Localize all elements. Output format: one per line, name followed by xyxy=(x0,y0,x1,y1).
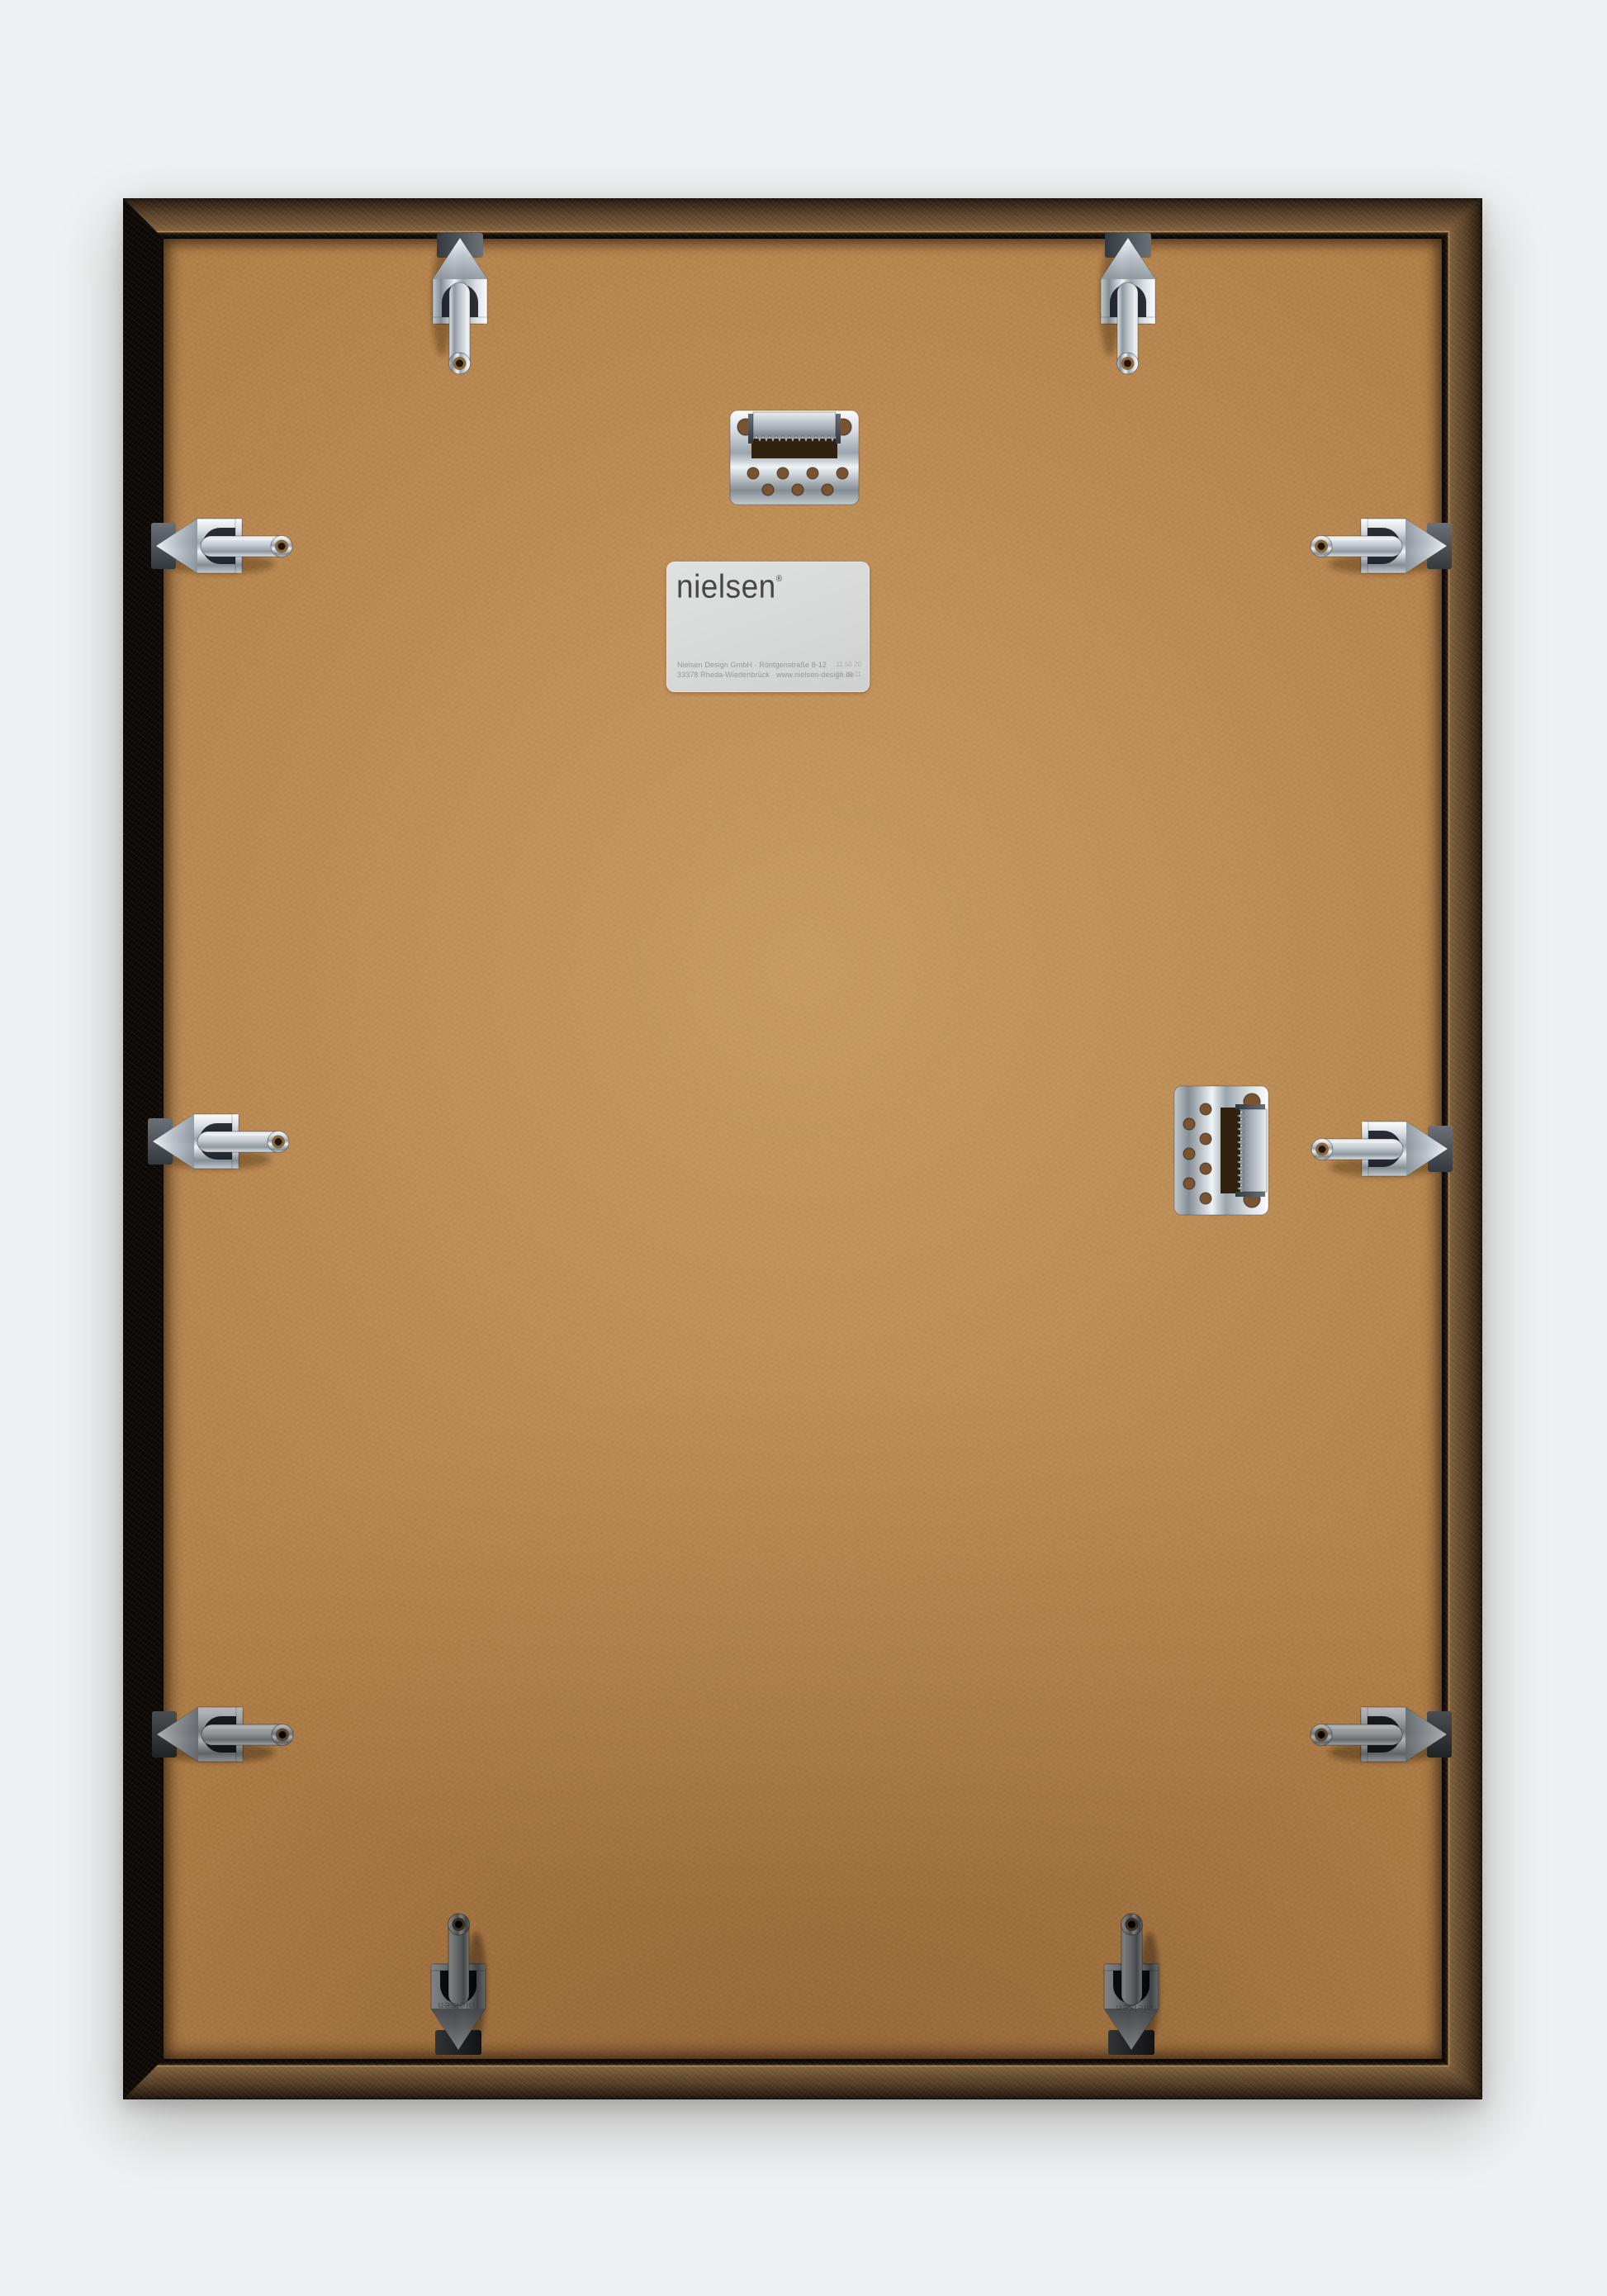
brand-logo: nielsen® xyxy=(676,568,782,605)
address-line-1: Nielsen Design GmbH · Röntgenstraße 8-12 xyxy=(677,660,854,670)
code-line-1: 11 50 20 xyxy=(836,660,861,670)
label-address: Nielsen Design GmbH · Röntgenstraße 8-12… xyxy=(677,660,854,680)
moulding-bottom xyxy=(123,2059,1482,2099)
moulding-top xyxy=(123,198,1482,239)
clip-embossing: nielsen xyxy=(427,2000,485,2012)
moulding-left xyxy=(123,198,164,2099)
address-line-2: 33378 Rheda-Wiedenbrück · www.nielsen-de… xyxy=(677,670,854,680)
photo-canvas: { "scene": { "description": "Back view o… xyxy=(0,0,1607,2296)
backing-board xyxy=(164,239,1442,2059)
frame-back: nielsen nielsen nielsen® Nielsen Design … xyxy=(123,198,1482,2099)
clip-embossing: nielsen xyxy=(1105,2003,1163,2014)
registered-mark: ® xyxy=(776,575,782,585)
moulding-right xyxy=(1442,198,1482,2099)
code-line-2: 21 10 11 xyxy=(836,670,861,680)
product-label: nielsen® Nielsen Design GmbH · Röntgenst… xyxy=(666,562,870,692)
label-codes: 11 50 20 21 10 11 xyxy=(836,660,861,680)
